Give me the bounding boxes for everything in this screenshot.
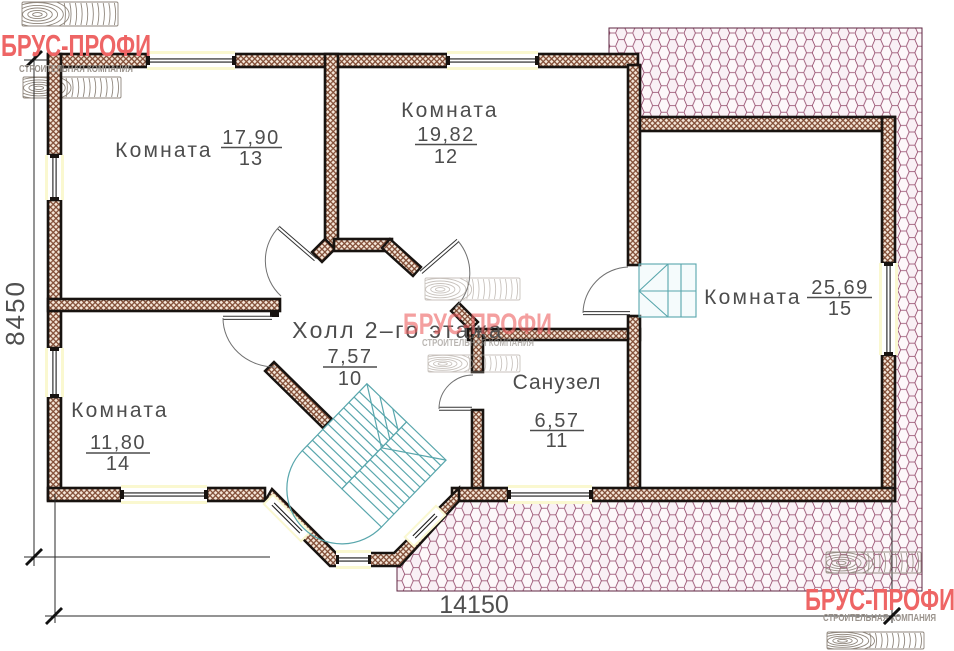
svg-text:15: 15 (828, 298, 852, 320)
svg-text:Комната: Комната (115, 139, 213, 162)
svg-text:БРУС-ПРОФИ: БРУС-ПРОФИ (1, 28, 151, 63)
svg-text:13: 13 (239, 148, 263, 170)
svg-text:19,82: 19,82 (417, 124, 475, 146)
svg-text:14150: 14150 (439, 591, 509, 619)
svg-text:СТРОИТЕЛЬНАЯ КОМПАНИЯ: СТРОИТЕЛЬНАЯ КОМПАНИЯ (823, 613, 936, 624)
svg-text:8450: 8450 (0, 280, 30, 346)
svg-text:Комната: Комната (71, 399, 169, 422)
svg-text:7,57: 7,57 (328, 346, 373, 368)
svg-text:Комната: Комната (704, 286, 802, 309)
svg-text:25,69: 25,69 (811, 277, 869, 299)
svg-text:СТРОИТЕЛЬНАЯ КОМПАНИЯ: СТРОИТЕЛЬНАЯ КОМПАНИЯ (422, 338, 534, 349)
svg-text:11,80: 11,80 (90, 432, 146, 454)
svg-text:БРУС-ПРОФИ: БРУС-ПРОФИ (805, 582, 954, 617)
svg-text:Комната: Комната (401, 99, 499, 122)
svg-text:БРУС-ПРОФИ: БРУС-ПРОФИ (403, 308, 552, 341)
svg-text:6,57: 6,57 (535, 410, 580, 432)
svg-text:Санузел: Санузел (513, 371, 602, 394)
svg-text:10: 10 (338, 368, 362, 390)
svg-text:17,90: 17,90 (222, 127, 280, 149)
svg-text:СТРОИТЕЛЬНАЯ КОМПАНИЯ: СТРОИТЕЛЬНАЯ КОМПАНИЯ (19, 64, 133, 75)
svg-text:12: 12 (434, 146, 458, 168)
svg-text:11: 11 (546, 430, 569, 452)
svg-text:14: 14 (106, 453, 130, 475)
